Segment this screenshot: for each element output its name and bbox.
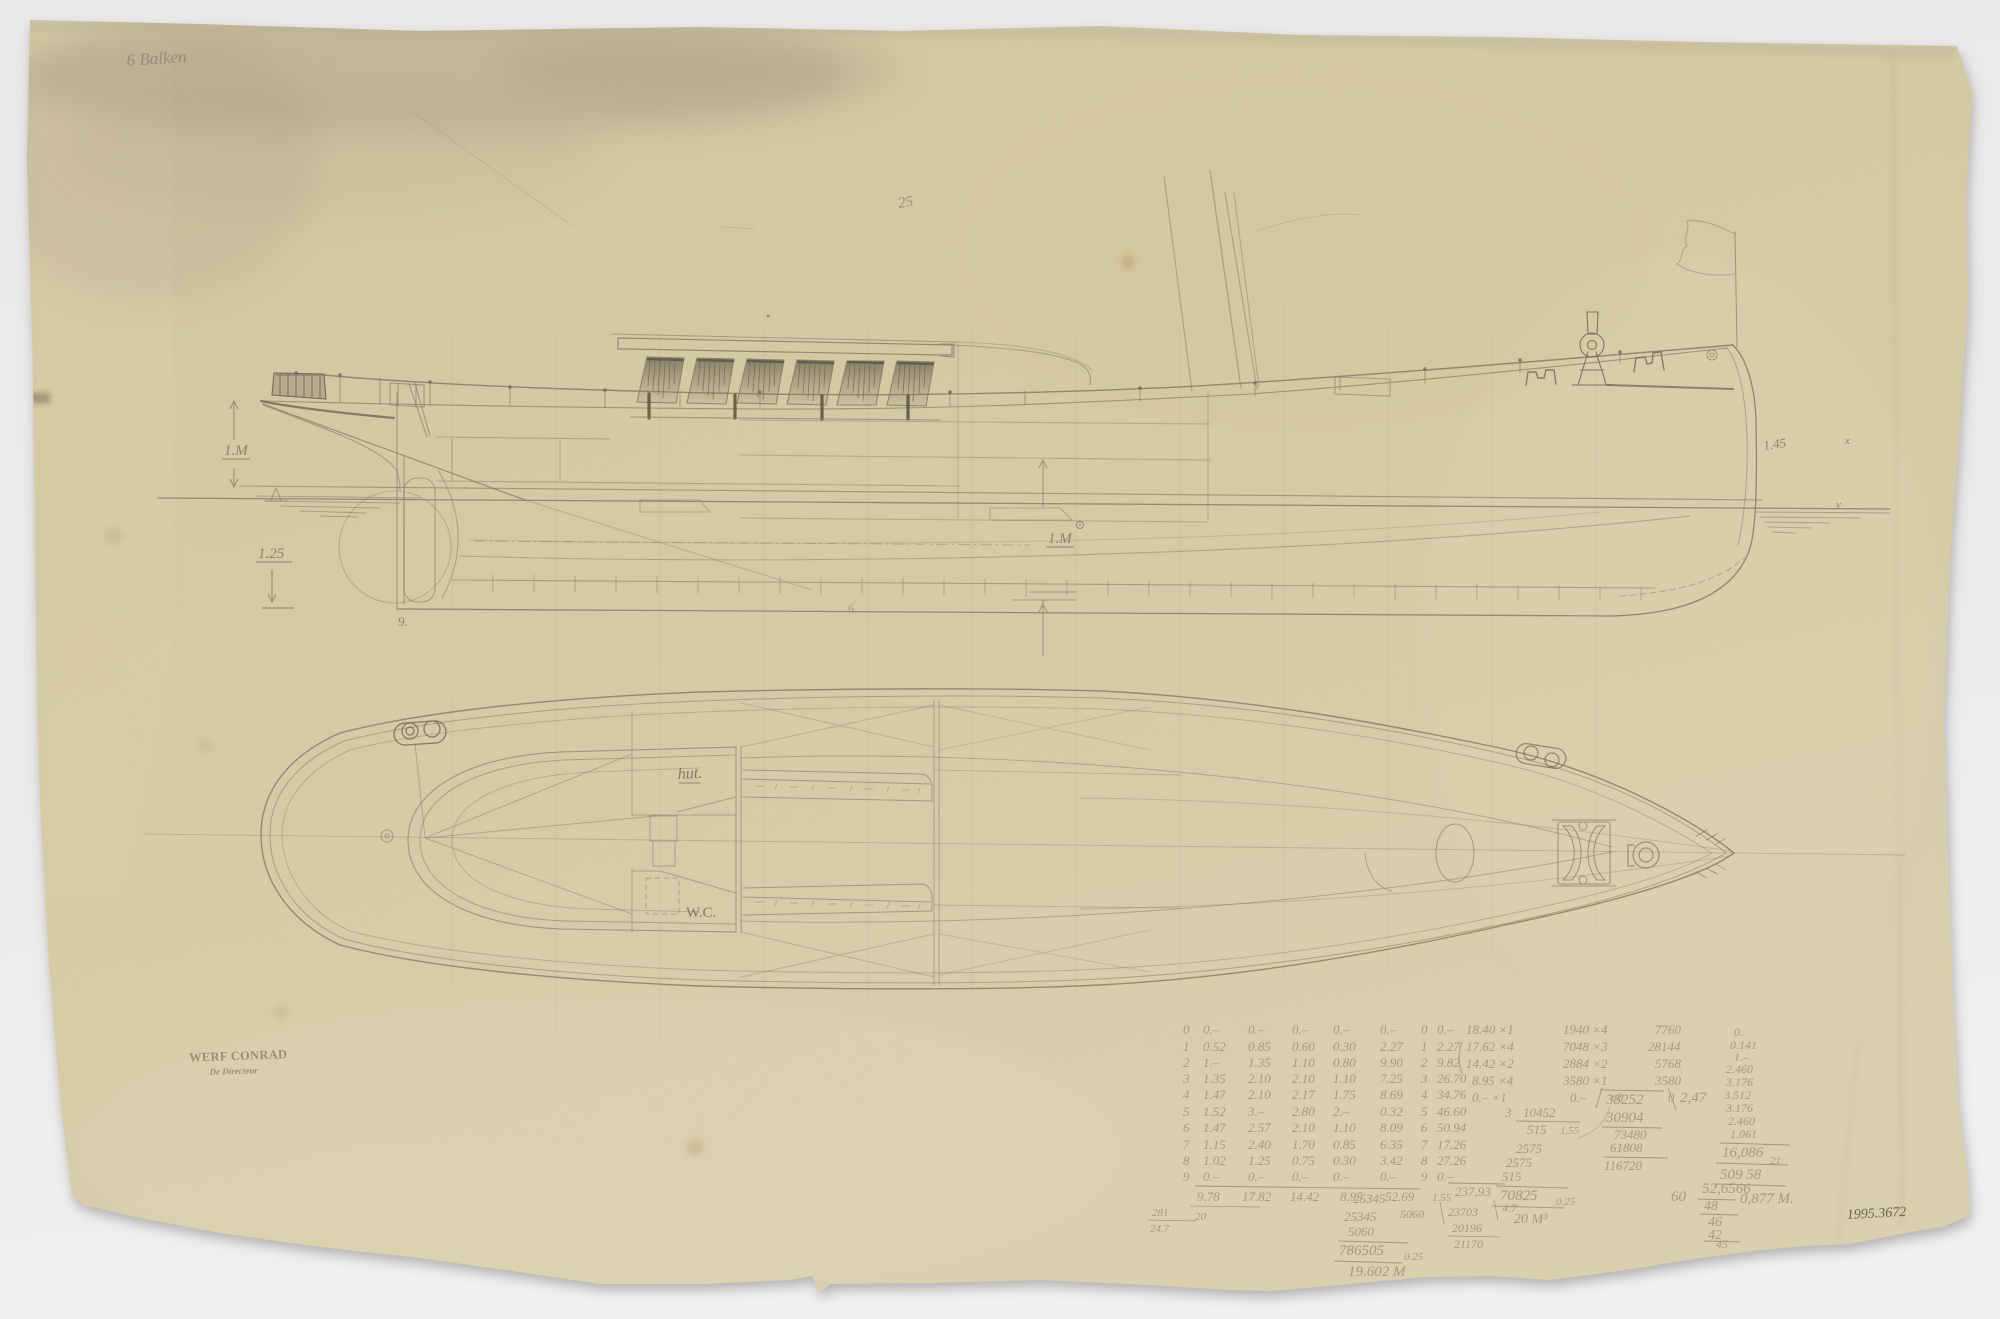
svg-text:116720: 116720 (1604, 1158, 1643, 1173)
svg-text:1.45: 1.45 (1762, 435, 1787, 453)
svg-text:0,877 M.: 0,877 M. (1740, 1191, 1794, 1207)
svg-text:20 M³: 20 M³ (1514, 1212, 1548, 1227)
svg-text:5060: 5060 (1400, 1207, 1424, 1221)
svg-text:2.460: 2.460 (1726, 1062, 1753, 1076)
svg-text:De Directeur: De Directeur (208, 1065, 258, 1077)
svg-text:1.M: 1.M (224, 443, 249, 459)
svg-text:786505: 786505 (1339, 1243, 1385, 1259)
svg-text:30904: 30904 (1605, 1110, 1644, 1126)
svg-text:61808: 61808 (1610, 1140, 1643, 1155)
svg-text:23703: 23703 (1448, 1205, 1478, 1219)
svg-text:45: 45 (1716, 1237, 1728, 1251)
svg-text:1.M: 1.M (1048, 531, 1073, 547)
svg-text:2,47: 2,47 (1680, 1090, 1708, 1106)
svg-text:3.512: 3.512 (1723, 1088, 1751, 1102)
svg-text:60: 60 (1671, 1189, 1687, 1205)
svg-text:1.061: 1.061 (1730, 1127, 1757, 1141)
svg-text:25345: 25345 (1353, 1191, 1386, 1206)
svg-text:21170: 21170 (1454, 1237, 1483, 1251)
svg-text:25345: 25345 (1344, 1209, 1377, 1224)
svg-text:1.25: 1.25 (258, 546, 285, 562)
svg-text:17.62 ×47048 ×328144: 17.62 ×47048 ×328144 (1466, 1039, 1681, 1054)
svg-text:20196: 20196 (1452, 1221, 1482, 1235)
svg-text:W.C.: W.C. (686, 905, 716, 921)
svg-text:5060: 5060 (1348, 1224, 1375, 1239)
svg-text:20: 20 (1195, 1211, 1207, 1223)
svg-text:2575: 2575 (1516, 1141, 1543, 1156)
svg-text:2575: 2575 (1506, 1155, 1533, 1170)
svg-text:3.176: 3.176 (1725, 1101, 1753, 1115)
svg-text:3.176: 3.176 (1725, 1075, 1753, 1089)
svg-text:2.460: 2.460 (1728, 1114, 1755, 1128)
svg-text:v: v (1836, 499, 1841, 511)
svg-text:0.: 0. (1734, 1025, 1743, 1039)
svg-text:9.: 9. (398, 614, 408, 629)
svg-text:16,086: 16,086 (1722, 1145, 1764, 1161)
svg-text:x: x (1844, 435, 1850, 447)
svg-text:0.25: 0.25 (1556, 1196, 1576, 1208)
svg-text:38252: 38252 (1605, 1092, 1644, 1108)
svg-text:24.7: 24.7 (1150, 1223, 1170, 1235)
svg-text:6: 6 (848, 601, 854, 615)
svg-text:hut.: hut. (677, 765, 702, 783)
svg-text:281: 281 (1152, 1207, 1169, 1219)
svg-text:237,93: 237,93 (1455, 1184, 1491, 1199)
svg-text:19.602 M: 19.602 M (1348, 1264, 1407, 1280)
svg-text:0.25: 0.25 (1404, 1251, 1424, 1263)
svg-text:515: 515 (1502, 1169, 1522, 1184)
svg-text:48: 48 (1704, 1199, 1718, 1214)
svg-text:4.7: 4.7 (1502, 1201, 1518, 1215)
svg-text:1995.3672: 1995.3672 (1846, 1205, 1906, 1223)
